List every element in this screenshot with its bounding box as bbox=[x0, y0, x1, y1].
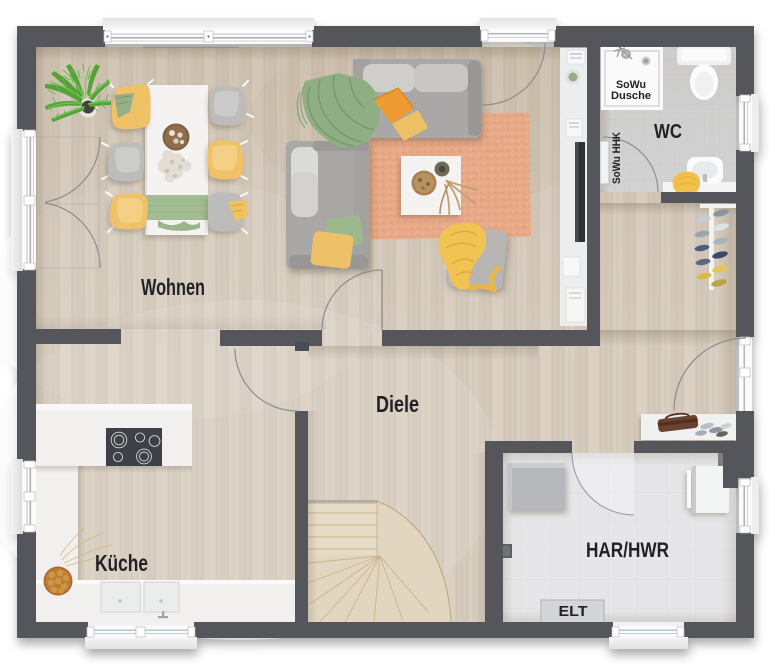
svg-text:WC: WC bbox=[654, 121, 682, 143]
svg-text:Küche: Küche bbox=[95, 550, 148, 576]
svg-text:Wohnen: Wohnen bbox=[141, 274, 205, 300]
svg-text:HAR/HWR: HAR/HWR bbox=[586, 539, 669, 562]
svg-text:Diele: Diele bbox=[376, 391, 419, 417]
svg-text:Dusche: Dusche bbox=[611, 90, 651, 102]
svg-text:SoWu HHK: SoWu HHK bbox=[611, 132, 623, 184]
svg-text:ELT: ELT bbox=[559, 603, 588, 620]
